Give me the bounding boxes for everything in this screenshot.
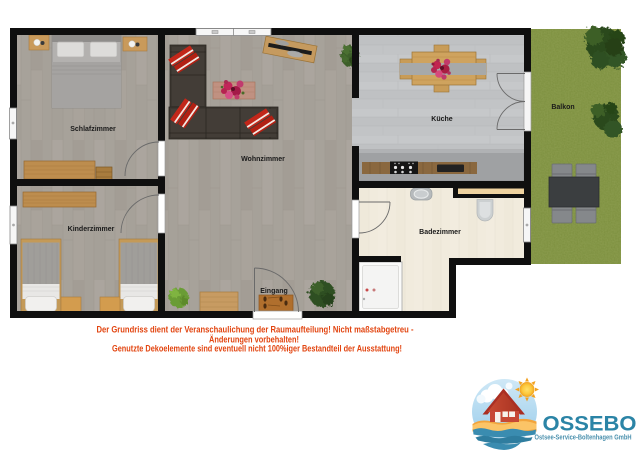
svg-text:Kinderzimmer: Kinderzimmer [68, 226, 115, 233]
svg-text:Küche: Küche [431, 116, 453, 123]
svg-text:Balkon: Balkon [551, 104, 574, 111]
svg-text:Ostsee-Service-Boltenhagen Gmb: Ostsee-Service-Boltenhagen GmbH [535, 435, 632, 442]
svg-text:Eingang: Eingang [260, 288, 288, 295]
svg-text:Wohnzimmer: Wohnzimmer [241, 156, 285, 163]
svg-text:Badezimmer: Badezimmer [419, 229, 461, 236]
svg-text:Schlafzimmer: Schlafzimmer [70, 126, 116, 133]
svg-text:OSSEBO: OSSEBO [543, 412, 637, 436]
svg-text:Genutzte Dekoelemente sind eve: Genutzte Dekoelemente sind eventuell nic… [112, 344, 402, 355]
